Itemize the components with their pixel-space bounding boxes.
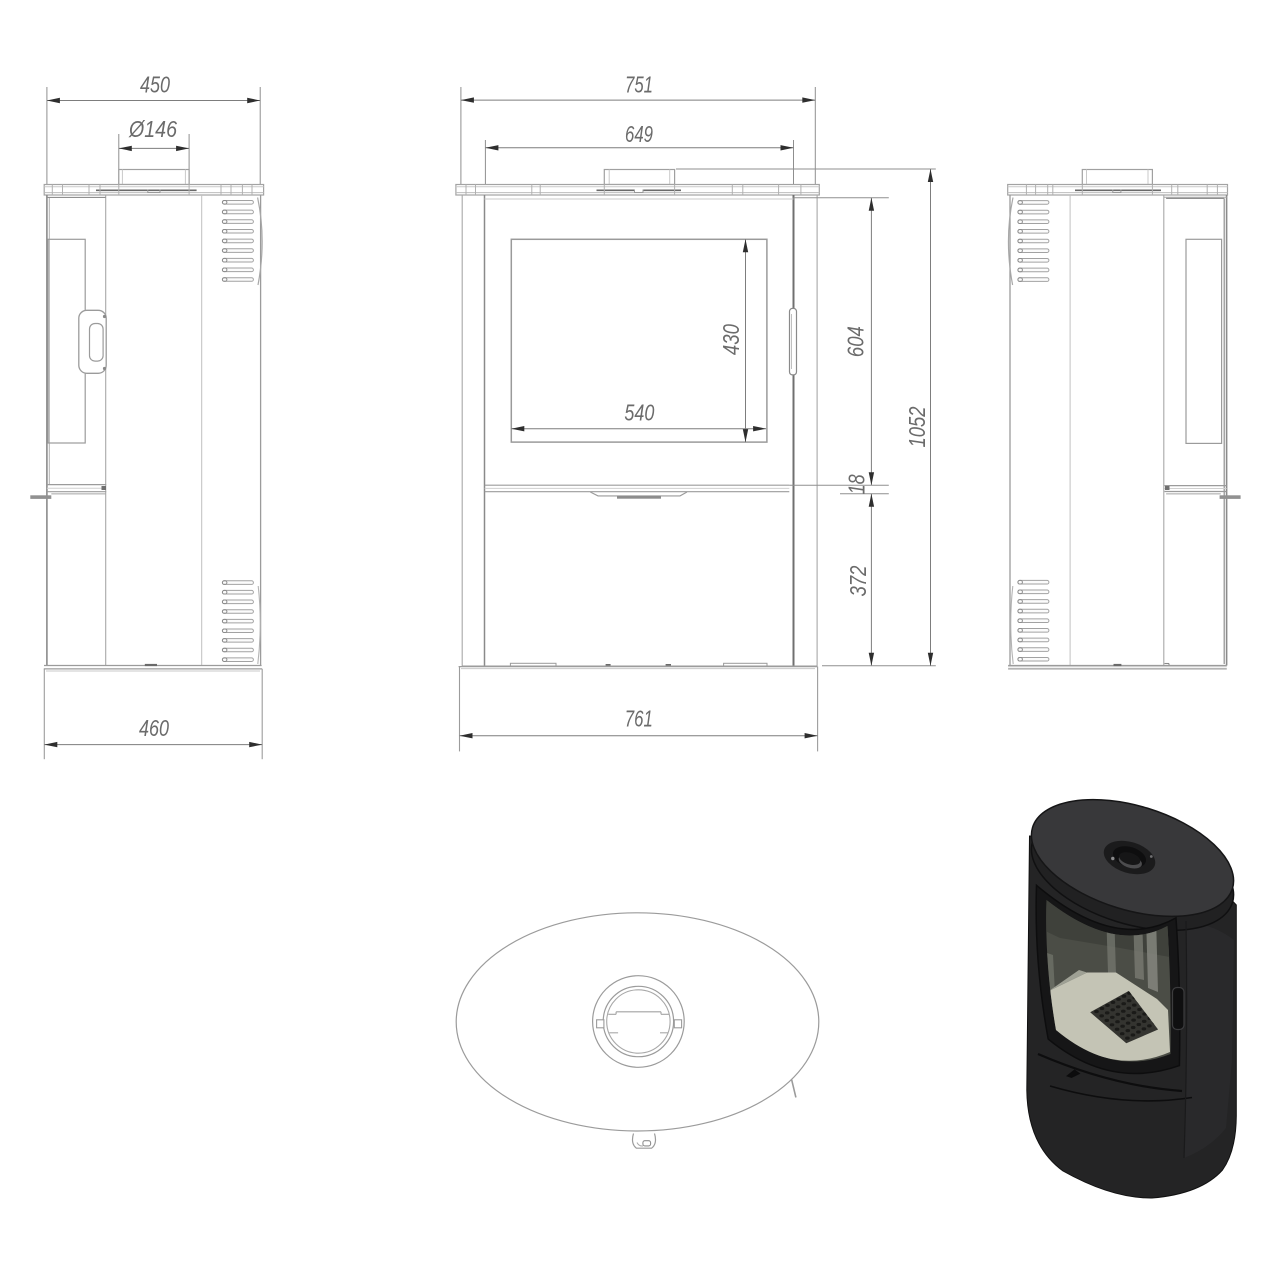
svg-text:372: 372 xyxy=(845,565,871,596)
svg-text:540: 540 xyxy=(624,400,654,426)
svg-text:649: 649 xyxy=(625,121,653,147)
svg-text:751: 751 xyxy=(625,72,653,98)
svg-text:1052: 1052 xyxy=(904,406,930,447)
svg-text:18: 18 xyxy=(843,474,869,494)
svg-text:604: 604 xyxy=(843,326,869,357)
svg-text:Ø146: Ø146 xyxy=(128,116,177,142)
svg-text:430: 430 xyxy=(718,324,744,355)
svg-text:450: 450 xyxy=(140,72,170,98)
svg-text:460: 460 xyxy=(139,715,169,741)
svg-text:761: 761 xyxy=(625,705,653,731)
